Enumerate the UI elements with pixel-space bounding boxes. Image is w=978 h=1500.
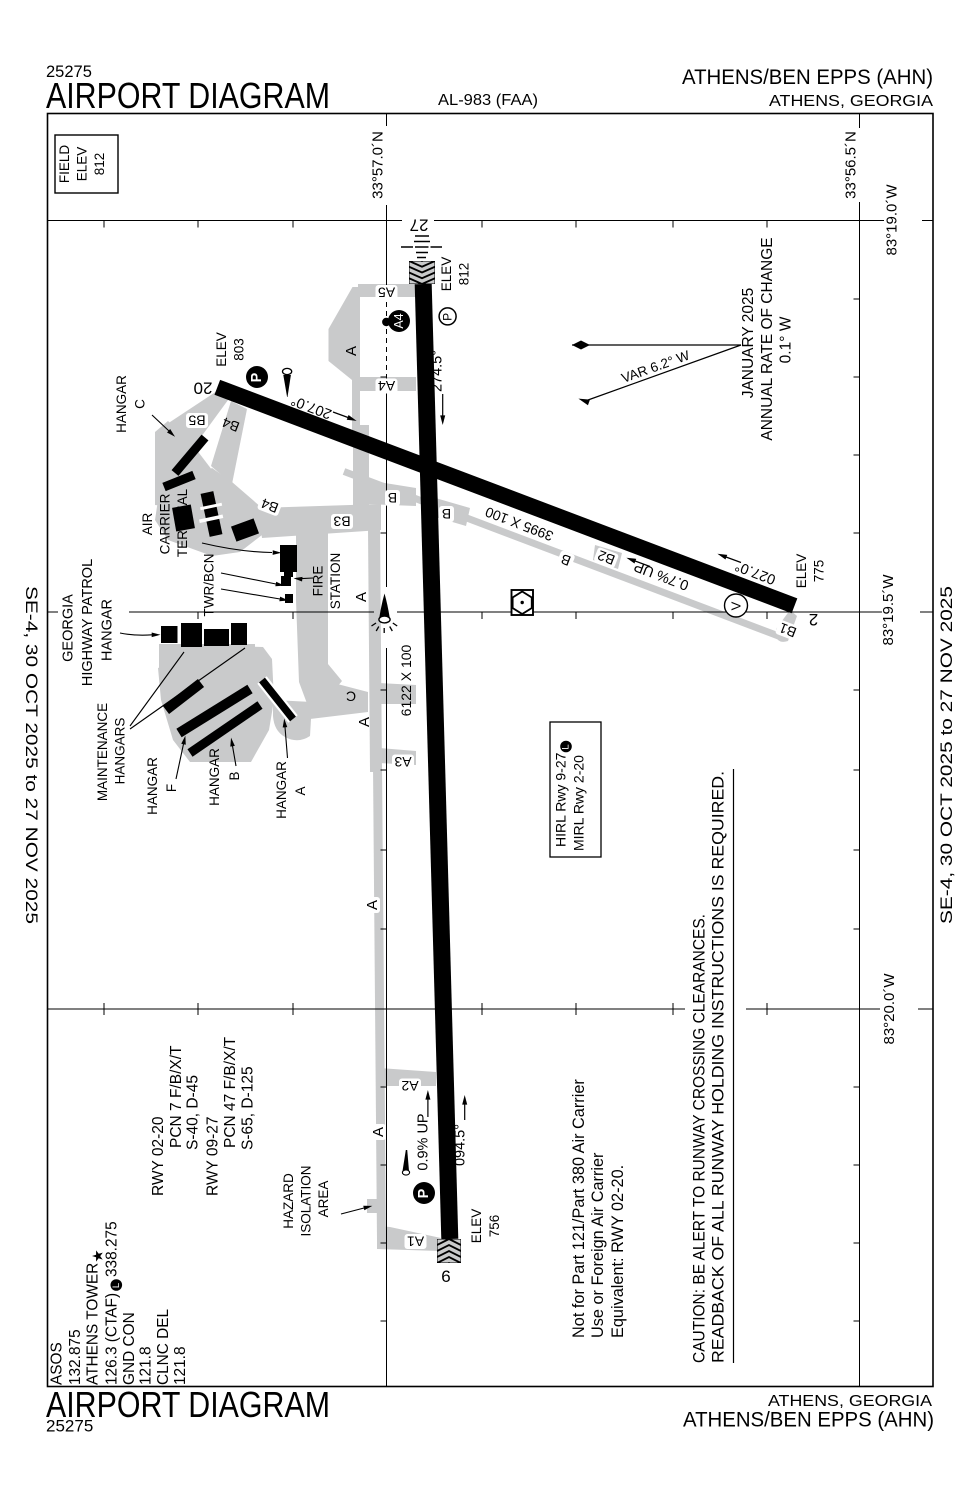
svg-text:READBACK OF ALL RUNWAY HOLDING: READBACK OF ALL RUNWAY HOLDING INSTRUCTI…	[709, 771, 728, 1363]
svg-text:20: 20	[194, 379, 213, 398]
svg-text:ELEV: ELEV	[75, 147, 90, 182]
svg-text:TERMINAL: TERMINAL	[175, 488, 190, 557]
svg-text:A: A	[343, 346, 360, 356]
svg-text:CLNC DEL: CLNC DEL	[155, 1308, 172, 1385]
svg-text:121.8: 121.8	[138, 1346, 155, 1385]
svg-text:27: 27	[410, 216, 429, 235]
svg-text:83°20.0´W: 83°20.0´W	[881, 973, 898, 1045]
svg-text:775: 775	[812, 560, 827, 583]
svg-text:P: P	[249, 372, 265, 382]
svg-text:C: C	[133, 399, 148, 409]
svg-text:CAUTION: BE ALERT TO RUNWAY CR: CAUTION: BE ALERT TO RUNWAY CROSSING CLE…	[690, 914, 709, 1363]
svg-text:Equivalent: RWY 02-20.: Equivalent: RWY 02-20.	[609, 1165, 627, 1338]
svg-text:A5: A5	[378, 285, 395, 301]
svg-text:L: L	[111, 1283, 122, 1288]
svg-text:STATION: STATION	[328, 553, 343, 610]
svg-text:L: L	[561, 744, 572, 749]
svg-text:094.5°: 094.5°	[453, 1124, 469, 1166]
svg-text:Use or Foreign Air Carrier: Use or Foreign Air Carrier	[589, 1152, 607, 1338]
svg-text:B: B	[227, 771, 242, 780]
svg-text:A: A	[370, 1127, 387, 1137]
svg-text:HANGAR: HANGAR	[114, 375, 129, 433]
svg-text:A: A	[293, 786, 308, 795]
svg-text:83°19.0´W: 83°19.0´W	[884, 184, 901, 256]
svg-text:0.1° W: 0.1° W	[778, 316, 795, 363]
svg-text:25275: 25275	[46, 1417, 93, 1436]
svg-text:RWY 09-27: RWY 09-27	[205, 1116, 222, 1196]
svg-text:A2: A2	[401, 1078, 418, 1094]
svg-text:ELEV: ELEV	[439, 257, 454, 292]
svg-text:SE-4, 30 OCT 2025 to 27 NOV: SE-4, 30 OCT 2025 to 27 NOV 2025	[22, 586, 41, 924]
svg-text:121.8: 121.8	[172, 1346, 189, 1385]
svg-text:132.875: 132.875	[67, 1329, 84, 1385]
svg-text:33°56.5´N: 33°56.5´N	[843, 131, 860, 199]
svg-text:A4: A4	[378, 378, 395, 394]
svg-text:756: 756	[487, 1215, 502, 1238]
svg-text:HANGARS: HANGARS	[113, 718, 128, 785]
svg-text:A4: A4	[392, 313, 406, 328]
svg-text:274.5°: 274.5°	[430, 350, 446, 392]
svg-text:C: C	[346, 689, 356, 705]
svg-text:HANGAR: HANGAR	[145, 757, 160, 815]
svg-text:AL-983 (FAA): AL-983 (FAA)	[438, 92, 538, 109]
svg-text:ATHENS, GEORGIA: ATHENS, GEORGIA	[769, 93, 933, 110]
svg-text:0.9% UP: 0.9% UP	[416, 1113, 432, 1170]
svg-text:9: 9	[441, 1267, 450, 1286]
svg-text:PCN 47 F/B/X/T: PCN 47 F/B/X/T	[222, 1036, 239, 1148]
svg-text:TWR/BCN: TWR/BCN	[202, 554, 217, 617]
svg-text:GND CON: GND CON	[121, 1312, 138, 1385]
svg-text:MAINTENANCE: MAINTENANCE	[95, 703, 110, 801]
svg-text:MIRL Rwy 2-20: MIRL Rwy 2-20	[571, 755, 587, 851]
svg-text:A: A	[356, 717, 373, 727]
svg-text:2: 2	[809, 610, 818, 629]
svg-text:A3: A3	[394, 754, 411, 770]
svg-text:ASOS: ASOS	[49, 1342, 66, 1385]
svg-text:FIELD: FIELD	[57, 145, 72, 184]
svg-text:ATHENS/BEN EPPS (AHN): ATHENS/BEN EPPS (AHN)	[682, 65, 933, 89]
svg-text:F: F	[164, 784, 179, 792]
svg-text:803: 803	[232, 338, 247, 361]
svg-text:P: P	[441, 313, 455, 321]
svg-text:812: 812	[457, 263, 472, 286]
svg-text:ELEV: ELEV	[214, 332, 229, 367]
svg-text:ANNUAL RATE OF CHANGE: ANNUAL RATE OF CHANGE	[759, 237, 776, 440]
svg-text:Not for Part 121/Part 380 Air: Not for Part 121/Part 380 Air Carrier	[570, 1079, 588, 1338]
svg-text:CARRIER: CARRIER	[158, 493, 173, 554]
svg-text:JANUARY 2025: JANUARY 2025	[740, 288, 757, 399]
svg-text:83°19.5´W: 83°19.5´W	[880, 574, 897, 646]
svg-text:ISOLATION: ISOLATION	[299, 1165, 314, 1236]
svg-text:AIRPORT DIAGRAM: AIRPORT DIAGRAM	[46, 75, 330, 116]
svg-text:HANGAR: HANGAR	[207, 748, 222, 806]
svg-text:AREA: AREA	[316, 1181, 331, 1218]
svg-text:SE-4, 30 OCT 2025 to 27 NOV: SE-4, 30 OCT 2025 to 27 NOV 2025	[937, 586, 956, 924]
svg-text:HIRL Rwy 9-27: HIRL Rwy 9-27	[553, 752, 569, 847]
svg-text:S-40, D-45: S-40, D-45	[185, 1075, 202, 1150]
svg-text:P: P	[416, 1188, 432, 1198]
svg-text:GEORGIA: GEORGIA	[61, 594, 77, 662]
svg-text:812: 812	[92, 153, 107, 176]
svg-text:338.275: 338.275	[104, 1221, 121, 1277]
svg-text:HAZARD: HAZARD	[281, 1173, 296, 1229]
svg-text:A: A	[364, 900, 381, 910]
svg-text:HIGHWAY PATROL: HIGHWAY PATROL	[80, 559, 96, 686]
svg-text:B5: B5	[188, 413, 205, 429]
svg-text:HANGAR: HANGAR	[274, 761, 289, 819]
svg-text:A1: A1	[407, 1234, 424, 1250]
svg-text:ELEV: ELEV	[794, 554, 809, 589]
svg-text:RWY 02-20: RWY 02-20	[150, 1116, 167, 1196]
svg-text:126.3 (CTAF): 126.3 (CTAF)	[104, 1293, 121, 1385]
svg-text:ATHENS TOWER: ATHENS TOWER	[85, 1263, 102, 1385]
svg-text:FIRE: FIRE	[311, 566, 326, 597]
svg-text:S-65, D-125: S-65, D-125	[240, 1066, 257, 1150]
svg-text:B: B	[442, 506, 451, 522]
svg-text:HANGAR: HANGAR	[100, 599, 116, 661]
svg-text:PCN 7 F/B/X/T: PCN 7 F/B/X/T	[168, 1045, 185, 1148]
svg-text:33°57.0´N: 33°57.0´N	[370, 131, 387, 199]
svg-text:V: V	[729, 601, 744, 610]
svg-text:ATHENS/BEN EPPS (AHN): ATHENS/BEN EPPS (AHN)	[683, 1408, 934, 1432]
svg-text:A: A	[353, 592, 370, 602]
svg-text:AIR: AIR	[140, 513, 155, 536]
svg-text:ELEV: ELEV	[469, 1209, 484, 1244]
svg-text:B3: B3	[333, 514, 350, 530]
svg-text:B: B	[388, 490, 397, 506]
svg-text:6122 X 100: 6122 X 100	[398, 644, 414, 716]
